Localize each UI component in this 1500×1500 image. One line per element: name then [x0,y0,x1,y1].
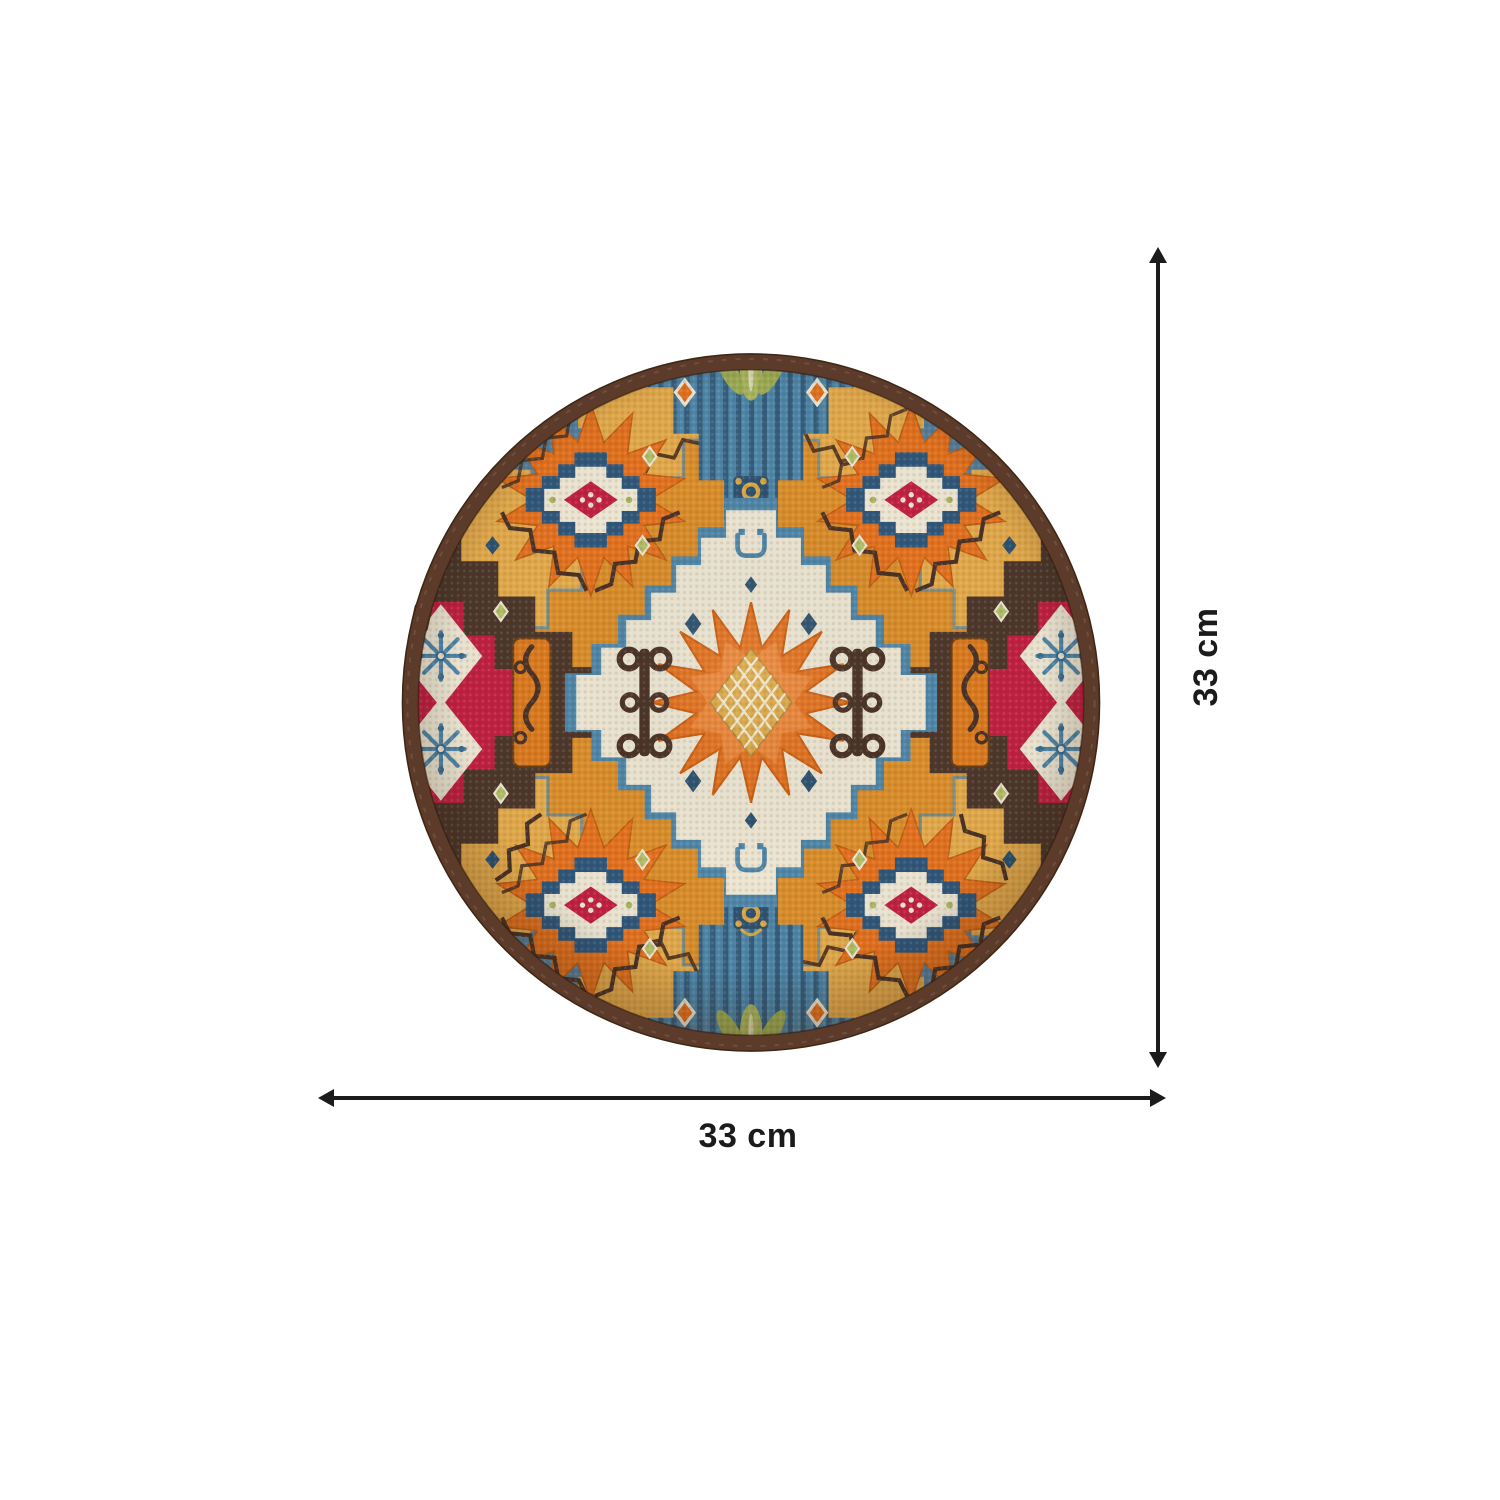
height-dimension-label: 33 cm [1186,597,1226,717]
placemat-image [394,352,1108,1053]
height-dimension-arrow [1156,263,1160,1052]
product-dimension-diagram: 33 cm 33 cm [0,0,1500,1500]
width-dimension-label: 33 cm [688,1117,808,1156]
width-dimension-arrow [334,1096,1150,1100]
